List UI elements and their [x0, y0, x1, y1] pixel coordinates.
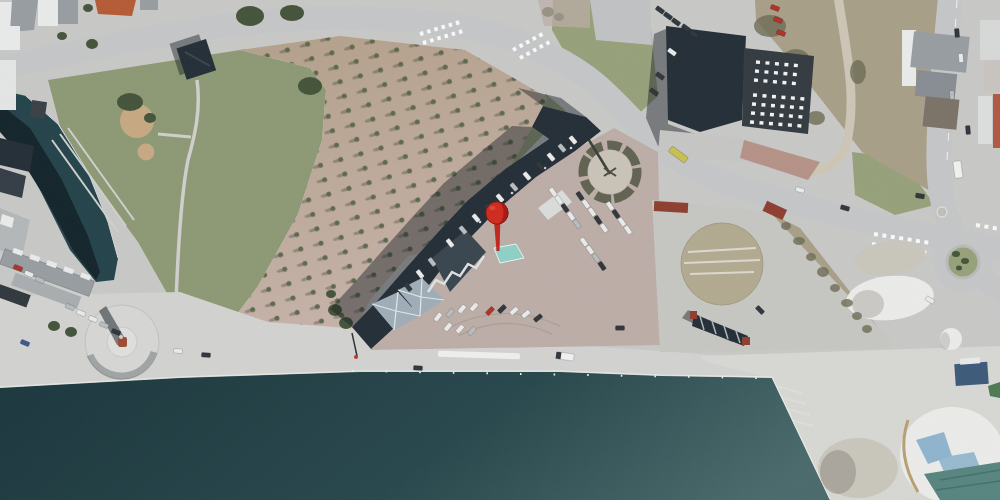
- aerial-map-view[interactable]: [0, 0, 1000, 500]
- photo-grain-overlay: [0, 0, 1000, 500]
